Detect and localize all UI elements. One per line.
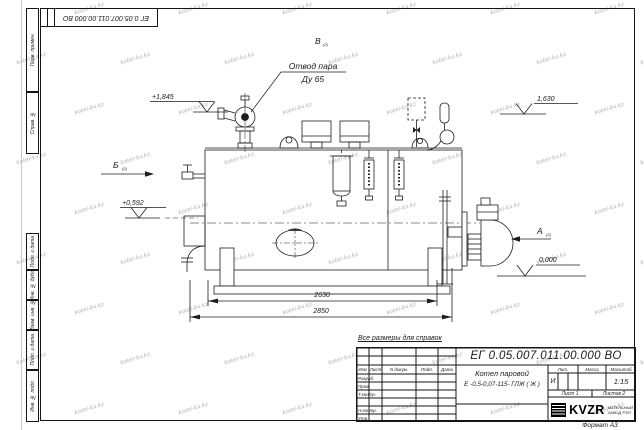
scale-value: 1:15 <box>606 373 636 390</box>
level-mark-0000 <box>497 265 586 276</box>
view-arrow-b <box>101 171 154 176</box>
col-header-date: Дата <box>438 365 456 374</box>
kvzr-logo-icon <box>551 403 566 417</box>
doc-number: ЕГ 0.05.007.011.00.000 ВО <box>456 347 636 365</box>
manhole-oval <box>272 228 318 258</box>
reference-note: Все размеры для справок <box>358 335 442 342</box>
safety-valve <box>218 93 255 152</box>
lit-label: Лит. <box>548 365 578 373</box>
level-mark-1845 <box>150 102 228 113</box>
callout-steam-outlet: Отвод пара <box>289 61 338 71</box>
dim-text-2850: 2850 <box>312 308 329 315</box>
level-mark-0592 <box>120 208 198 219</box>
view-arrow-a <box>511 236 551 241</box>
drawing-sheet: kotel-kv.kzkotel-kv.kzkotel-kv.kzkotel-k… <box>0 0 644 430</box>
kvzr-logo-text: KVZR <box>569 403 605 417</box>
water-column <box>330 150 353 206</box>
view-label-v-sub: (2) <box>323 42 329 47</box>
gauge-glass-1 <box>364 150 374 200</box>
level-text-1630: 1,630 <box>537 96 555 103</box>
row-utv: Утв. <box>356 414 382 422</box>
callout-du65: Ду 65 <box>301 74 324 84</box>
gauge-glass-2 <box>394 150 404 200</box>
burner-unit <box>448 198 513 266</box>
sheets-cell: Листов 2 <box>592 390 636 397</box>
view-label-b-sub: (2) <box>122 166 128 171</box>
view-label-b: Б <box>113 160 119 170</box>
level-text-1845: +1,845 <box>152 94 174 101</box>
level-text-0000: 0,000 <box>539 257 557 264</box>
callout-leader-line <box>251 72 346 112</box>
row-prov: Пров. <box>356 382 382 390</box>
dim-text-2630: 2630 <box>313 292 330 299</box>
format-note: Формат А3 <box>560 422 640 429</box>
product-name-line2: Е -0,5-0,07-115- ГЛЖ ( Ж ) <box>456 378 548 390</box>
level-text-0592: +0,592 <box>122 200 144 207</box>
view-label-a-sub: (2) <box>546 232 552 237</box>
company-name: КОТЕЛЬНЫЙ ЗАВОД РЭП <box>608 405 633 415</box>
sheet-cell: Лист 1 <box>548 390 592 397</box>
left-fittings <box>181 165 205 272</box>
top-hatches <box>302 121 369 148</box>
row-razrab: Разраб. <box>356 374 382 382</box>
view-label-v: В <box>315 36 321 46</box>
scale-label: Масштаб <box>606 365 636 373</box>
row-tkontr: Т.контр. <box>356 390 382 398</box>
lit-value: И <box>548 373 558 390</box>
row-nkontr: Н.контр. <box>356 406 382 414</box>
mass-label: Масса <box>578 365 606 373</box>
company-name-line2: ЗАВОД РЭП <box>608 410 633 415</box>
view-label-a: А <box>536 226 543 236</box>
col-header-sign: Подп. <box>416 365 438 374</box>
level-mark-1630 <box>500 104 578 115</box>
col-header-list: Лист <box>369 365 382 374</box>
pressure-gauge-siphon <box>426 103 454 150</box>
col-header-doc: N докум. <box>382 365 416 374</box>
col-header-izm: Изм <box>356 365 369 374</box>
mass-value <box>578 373 606 390</box>
supports-and-skid <box>214 248 450 294</box>
company-cell: KVZR КОТЕЛЬНЫЙ ЗАВОД РЭП <box>548 397 636 422</box>
title-block: ЕГ 0.05.007.011.00.000 ВО Изм Лист N док… <box>356 347 636 422</box>
